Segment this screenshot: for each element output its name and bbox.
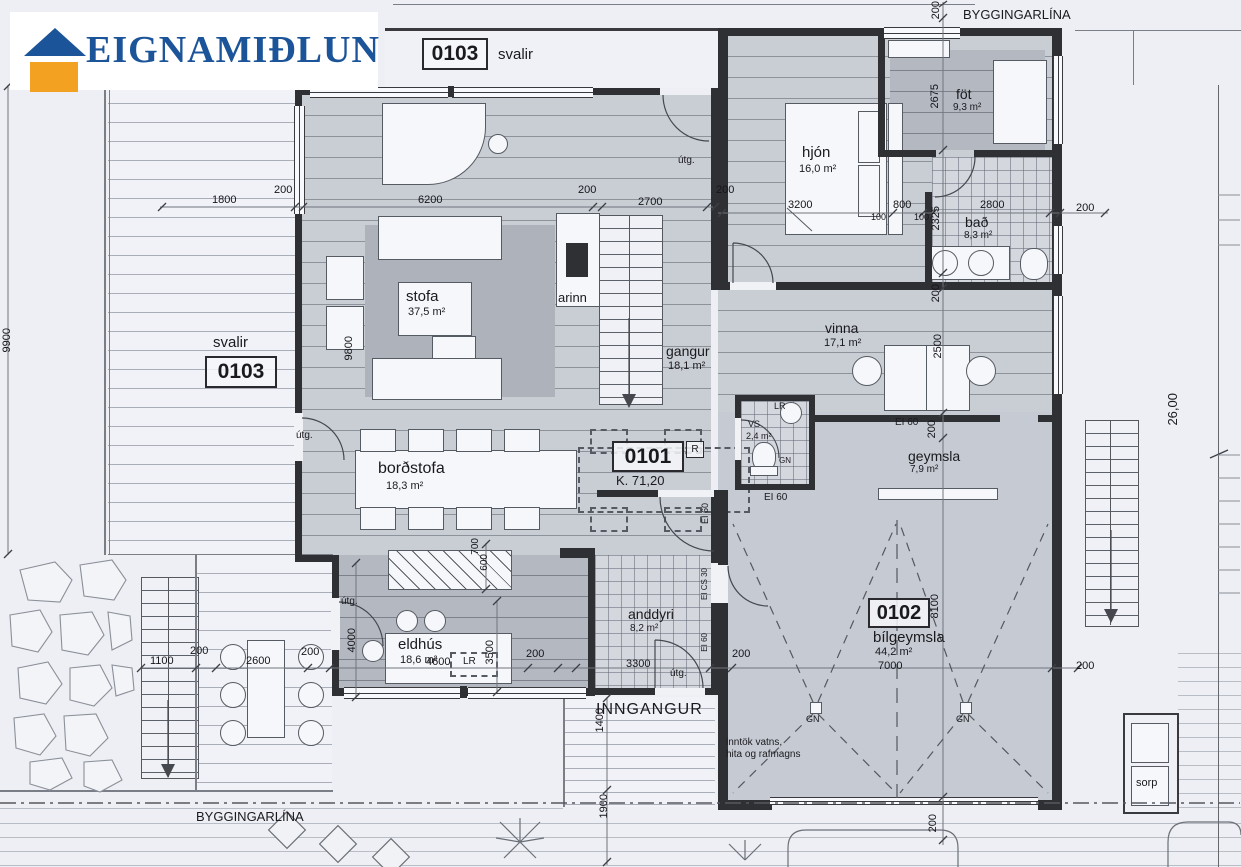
toilet	[1020, 248, 1048, 280]
dining-chair	[408, 429, 444, 452]
upper-floor-outline	[393, 4, 975, 5]
dim-label: 200	[301, 646, 319, 658]
dim-label: 9900	[1, 328, 13, 352]
floor-drain	[810, 702, 822, 714]
room-label-anddyri: anddyri	[628, 606, 674, 622]
room-area-vinna: 17,1 m²	[824, 337, 861, 349]
dim-label: 3500	[484, 640, 496, 664]
dining-chair	[360, 429, 396, 452]
patio-chair	[298, 720, 324, 746]
deck-edge	[109, 85, 110, 555]
window	[452, 87, 593, 98]
room-area-hjon: 16,0 m²	[799, 163, 836, 175]
dim-label: 6200	[418, 194, 442, 206]
door-opening	[658, 490, 714, 497]
dim-label: 1900	[598, 794, 610, 818]
dim-label: 1800	[212, 194, 236, 206]
dim-label: 200	[274, 184, 292, 196]
dim-label: 3300	[626, 658, 650, 670]
building-line-top	[1133, 30, 1134, 85]
wc-cistern	[750, 466, 778, 476]
property-ticks	[1218, 195, 1240, 593]
room-label-fot: föt	[956, 86, 972, 102]
walkway-edge	[563, 697, 565, 807]
patio-chair	[298, 682, 324, 708]
wall	[735, 484, 815, 490]
ground-strip-right	[1178, 640, 1241, 810]
door-opening	[718, 565, 728, 603]
fire-rating-label: EI 60	[895, 417, 918, 428]
window-post	[460, 686, 467, 698]
room-area-vs: 2,4 m²	[746, 431, 772, 441]
stair-centerline	[168, 577, 169, 777]
wall	[560, 548, 590, 558]
ground-strip	[0, 810, 1241, 867]
window	[884, 27, 960, 39]
patio-chair	[220, 720, 246, 746]
dim-label: 200	[190, 645, 208, 657]
room-label-bordstofa: borðstofa	[378, 460, 445, 478]
room-area-bad: 8,3 m²	[964, 230, 992, 241]
lr-label-wc: LR	[774, 401, 786, 411]
fire-rating-label: EI 60	[700, 633, 709, 652]
door-opening	[730, 282, 776, 290]
dim-label: 200	[526, 648, 544, 660]
stair-exterior-left	[141, 577, 199, 779]
room-label-stofa: stofa	[406, 288, 439, 305]
dim-label: 200	[732, 648, 750, 660]
exit-label: útg.	[670, 668, 687, 679]
wall	[1052, 28, 1062, 810]
logo-house-body-icon	[30, 62, 78, 92]
unit-box-0102: 0102	[868, 598, 930, 628]
building-line-top	[1075, 30, 1241, 31]
ground-strip-left	[0, 795, 563, 810]
door-opening	[655, 688, 705, 695]
level-label: K. 71,20	[616, 473, 664, 488]
dim-label: 2800	[980, 199, 1004, 211]
dim-label: 2500	[932, 334, 944, 358]
room-area-geymsla: 7,9 m²	[910, 464, 938, 475]
room-label-eldhus: eldhús	[398, 636, 442, 653]
stair-centerline	[629, 215, 630, 403]
sorp-bin	[1131, 723, 1169, 763]
sofa	[378, 216, 502, 260]
wall	[595, 688, 655, 695]
bar-stool	[424, 610, 446, 632]
room-label-hjon: hjón	[802, 144, 830, 161]
exit-label: útg.	[296, 430, 313, 441]
room-area-fot: 9,3 m²	[953, 102, 981, 113]
dim-label: 200	[927, 814, 939, 832]
window	[344, 687, 460, 699]
wall	[711, 603, 718, 695]
wall	[588, 548, 595, 695]
sorp-label: sorp	[1136, 777, 1157, 789]
stones	[10, 560, 134, 792]
r-mark-box: R	[686, 441, 704, 458]
dim-label: 9800	[343, 336, 355, 360]
dim-label: 4600	[426, 656, 450, 668]
fireplace-hearth	[566, 243, 588, 277]
window-post	[448, 86, 454, 97]
unit-box-0103-left: 0103	[205, 356, 277, 388]
stair-interior	[599, 215, 663, 405]
building-line-label-top: BYGGINGARLÍNA	[963, 7, 1071, 22]
unit-box-0101: 0101	[612, 441, 684, 472]
stair-centerline	[1110, 420, 1111, 625]
deck-edge	[195, 555, 197, 790]
dim-label: 800	[893, 199, 911, 211]
wall	[1038, 800, 1062, 810]
patio-chair	[220, 682, 246, 708]
wall	[718, 800, 772, 810]
room-area-bordstofa: 18,3 m²	[386, 480, 423, 492]
dim-label: 3200	[788, 199, 812, 211]
deck-edge	[0, 790, 333, 792]
dim-label: 2700	[638, 196, 662, 208]
wall	[718, 28, 728, 290]
sofa	[372, 358, 502, 400]
dim-label: 700	[470, 538, 481, 555]
deck-edge	[104, 85, 106, 555]
dining-chair	[360, 507, 396, 530]
wall	[974, 150, 1052, 157]
exit-label: útg.	[678, 155, 695, 166]
room-label-bilgeymsla: bílgeymsla	[873, 629, 945, 646]
room-area-gangur: 18,1 m²	[668, 360, 705, 372]
closet-shelf	[888, 40, 950, 58]
dim-label: 7000	[878, 660, 902, 672]
fire-rating-label-cs: EI CS 30	[700, 568, 709, 600]
bar-stool	[362, 640, 384, 662]
room-label-arinn: arinn	[558, 290, 587, 305]
dining-chair	[408, 507, 444, 530]
wall	[878, 150, 936, 157]
utilities-note-line2: hita og rafmagns	[726, 749, 801, 760]
desk	[884, 345, 928, 411]
room-area-anddyri: 8,2 m²	[630, 623, 658, 634]
dim-label: 200	[930, 284, 942, 302]
door-opening	[711, 563, 718, 603]
dim-label: 200	[716, 184, 734, 196]
floor-plan: 0103 0103 0101 R 0102 K. 71,20 svalir sv…	[0, 0, 1241, 867]
agency-logo: EIGNAMIÐLUN	[10, 12, 378, 90]
dim-label: 200	[1076, 660, 1094, 672]
wall	[1038, 415, 1052, 422]
room-area-bilgeymsla: 44,2 m²	[875, 646, 912, 658]
property-length-label: 26,00	[1165, 393, 1180, 426]
wall	[878, 28, 885, 157]
wall	[809, 395, 815, 490]
dim-label: 200	[930, 1, 942, 19]
exit-label: útg.	[341, 596, 358, 607]
window	[1053, 226, 1063, 274]
dim-label: 2600	[246, 655, 270, 667]
wall	[718, 490, 728, 565]
garage-door	[770, 797, 1038, 805]
dim-label: 200	[926, 420, 938, 438]
window	[294, 106, 305, 214]
dim-label: 200	[1076, 202, 1094, 214]
closet-shelf	[993, 60, 1047, 144]
dim-label: 200	[578, 184, 596, 196]
bar-stool	[396, 610, 418, 632]
storage-bench	[878, 488, 998, 500]
utilities-note-line1: inntök vatns,	[726, 737, 782, 748]
door-opening	[331, 598, 340, 650]
dim-label: 2325	[930, 206, 942, 230]
room-label-vinna: vinna	[825, 320, 858, 336]
room-label-svalir-top: svalir	[498, 46, 533, 63]
wall	[718, 603, 728, 810]
logo-house-roof-icon	[24, 28, 86, 56]
floor-drain	[960, 702, 972, 714]
sink	[968, 250, 994, 276]
gn-label-wc: GN	[779, 456, 791, 465]
patio-chair	[220, 644, 246, 670]
kitchen-counter	[388, 550, 512, 590]
wardrobe	[888, 103, 903, 235]
wall	[711, 497, 718, 563]
room-label-svalir-left: svalir	[213, 334, 248, 351]
building-line-label-bottom: BYGGINGARLÍNA	[196, 809, 304, 824]
piano-stool	[488, 134, 508, 154]
dim-label: 100	[871, 212, 886, 222]
sink	[932, 250, 958, 276]
room-area-stofa: 37,5 m²	[408, 306, 445, 318]
unit-box-0103-top: 0103	[422, 38, 488, 70]
pillow	[858, 111, 880, 163]
dim-label: 8100	[929, 594, 941, 618]
pillow	[858, 165, 880, 217]
room-label-gangur: gangur	[666, 343, 710, 359]
office-chair	[966, 356, 996, 386]
room-label-geymsla: geymsla	[908, 448, 960, 464]
office-chair	[852, 356, 882, 386]
dining-chair	[504, 507, 540, 530]
agency-name: EIGNAMIÐLUN	[86, 28, 380, 72]
dining-chair	[456, 507, 492, 530]
property-line	[1218, 85, 1219, 867]
dim-label: 4000	[346, 628, 358, 652]
gn-label-garage-right: GN	[956, 714, 970, 724]
room-label-bad: bað	[965, 214, 988, 230]
dining-chair	[504, 429, 540, 452]
wall	[776, 282, 1052, 290]
dim-label: 1400	[594, 708, 606, 732]
stair-exterior-right	[1085, 420, 1139, 627]
dining-chair	[456, 429, 492, 452]
dim-label: 2675	[929, 84, 941, 108]
deck-svalir-left	[108, 85, 298, 555]
window	[468, 687, 586, 699]
upper-floor-wall	[385, 28, 718, 31]
entrance-label: INNGANGUR	[596, 701, 703, 719]
wall	[597, 490, 658, 497]
dashed-chair	[590, 507, 628, 532]
window	[1053, 296, 1063, 394]
window	[1053, 56, 1063, 144]
dashed-chair	[664, 507, 702, 532]
fire-rating-label: EI 60	[700, 503, 710, 524]
dim-label: 1100	[150, 655, 174, 667]
dim-label: 100	[914, 212, 929, 222]
fire-rating-label: EI 60	[764, 492, 787, 503]
gn-label-garage-left: GN	[806, 714, 820, 724]
dim-label: 600	[479, 554, 490, 571]
door-opening	[735, 418, 741, 460]
lr-label-kitchen: LR	[463, 656, 476, 667]
armchair	[326, 256, 364, 300]
room-label-vs: VS	[748, 419, 760, 429]
